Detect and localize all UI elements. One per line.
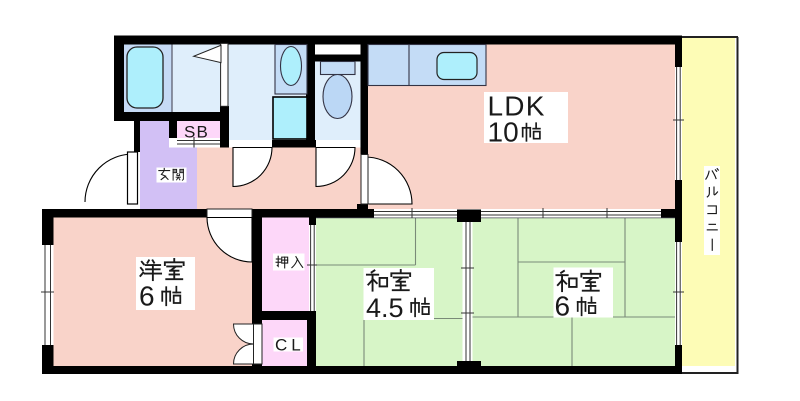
svg-text:6: 6	[555, 291, 571, 322]
svg-text:4.5: 4.5	[366, 293, 404, 323]
svg-text:SB: SB	[184, 123, 209, 142]
svg-text:CL: CL	[275, 336, 305, 355]
svg-text:6: 6	[139, 281, 155, 312]
svg-text:10: 10	[488, 117, 519, 148]
